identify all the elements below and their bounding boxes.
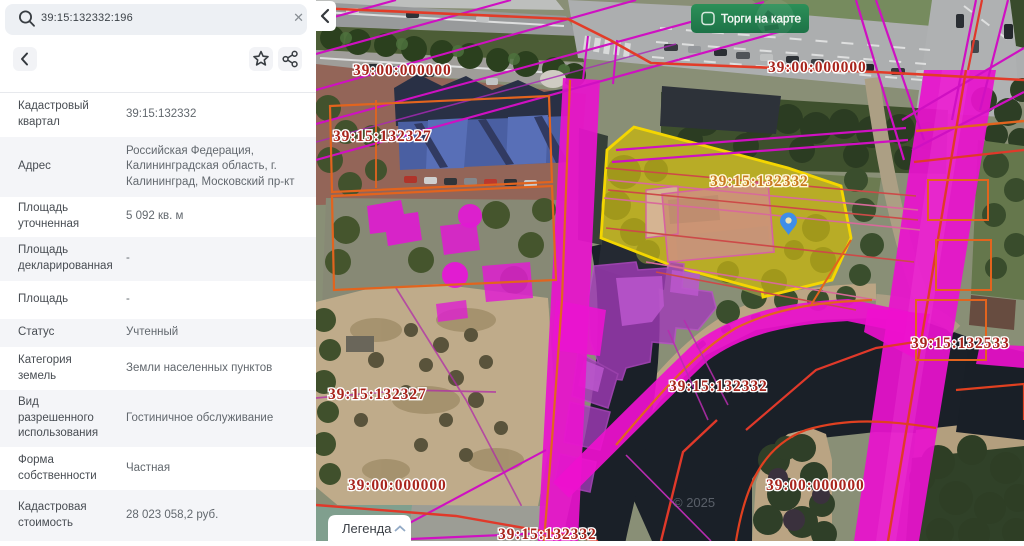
svg-text:39:15:132327: 39:15:132327 — [328, 386, 427, 403]
svg-text:© 2025: © 2025 — [673, 495, 715, 510]
svg-text:39:00:000000: 39:00:000000 — [348, 477, 447, 494]
svg-text:39:15:132327: 39:15:132327 — [333, 128, 432, 145]
svg-text:39:15:132332: 39:15:132332 — [498, 526, 597, 541]
svg-text:Торги на карте: Торги на карте — [721, 12, 801, 26]
svg-text:39:15:132533: 39:15:132533 — [911, 335, 1010, 352]
svg-text:39:15:132332: 39:15:132332 — [669, 378, 768, 395]
svg-text:Легенда: Легенда — [342, 521, 392, 536]
svg-text:39:00:000000: 39:00:000000 — [353, 62, 452, 79]
svg-text:39:00:000000: 39:00:000000 — [766, 477, 865, 494]
svg-text:39:00:000000: 39:00:000000 — [768, 59, 867, 76]
svg-text:39:15:132332: 39:15:132332 — [710, 173, 809, 190]
